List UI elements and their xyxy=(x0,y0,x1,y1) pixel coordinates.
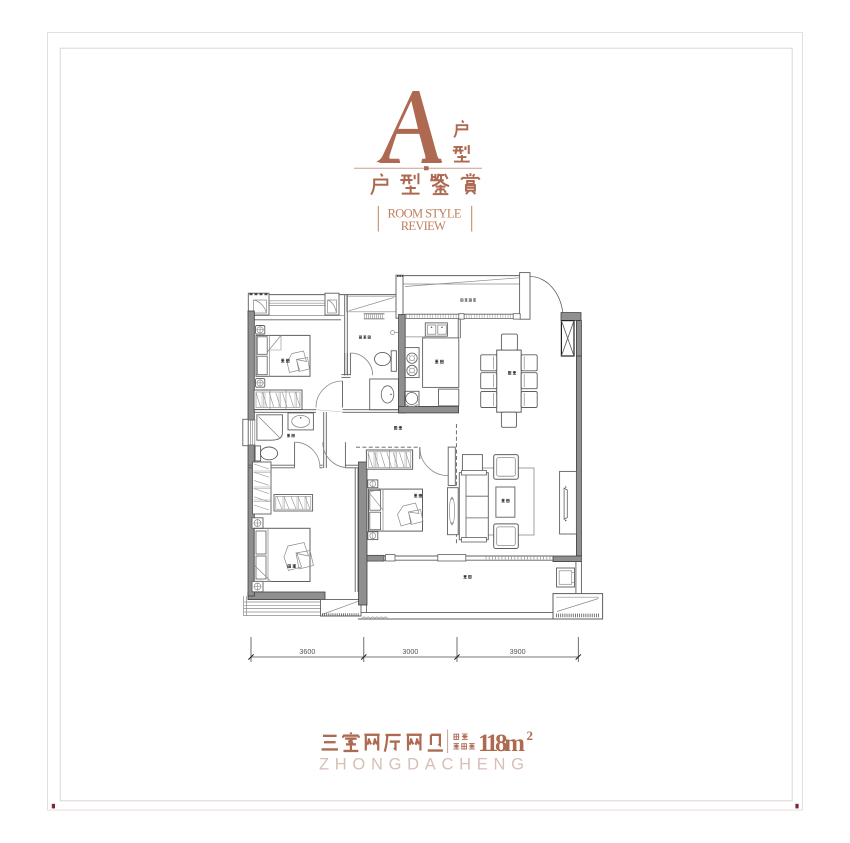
svg-text:118m: 118m xyxy=(478,730,525,757)
svg-text:ROOM STYLE: ROOM STYLE xyxy=(388,206,462,220)
svg-text:2: 2 xyxy=(527,728,534,743)
svg-text:3600: 3600 xyxy=(299,647,315,656)
svg-text:3900: 3900 xyxy=(510,647,526,656)
svg-text:3000: 3000 xyxy=(402,647,418,656)
svg-text:REVIEW: REVIEW xyxy=(401,219,446,233)
